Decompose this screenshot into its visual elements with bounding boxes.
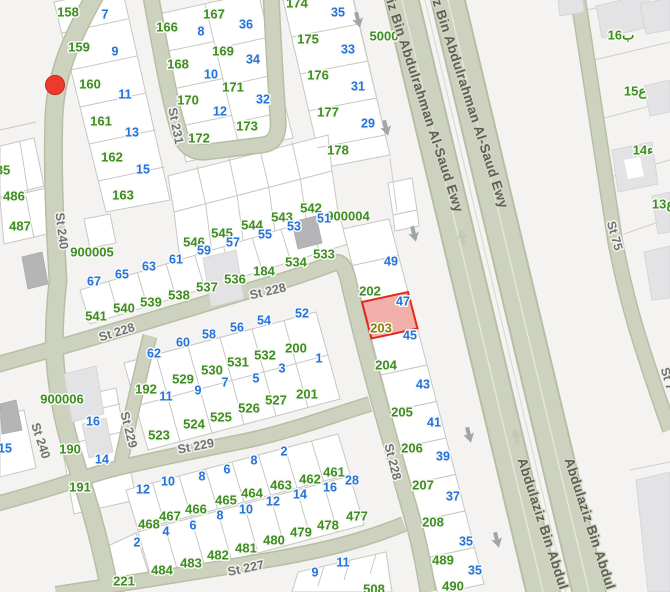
parcel-number-label: 530 [201, 362, 223, 377]
parcel-number-label: 531 [227, 354, 249, 369]
parcel-number-label: 200 [285, 340, 307, 355]
parcel-number-label: 524 [183, 416, 205, 431]
parcel-number-label: 178 [327, 142, 349, 157]
parcel-number-label: 184 [253, 263, 275, 278]
parcel-number-label: 525 [210, 409, 232, 424]
house-number-label: 11 [118, 87, 131, 101]
parcel-number-label: 486 [3, 188, 25, 203]
parcel-number-label: 532 [254, 347, 276, 362]
parcel-number-label: 541 [85, 308, 107, 323]
house-number-label: 11 [336, 555, 349, 569]
house-number-label: 61 [169, 252, 183, 266]
house-number-label: 51 [317, 211, 331, 225]
parcel-number-label: 526 [238, 400, 260, 415]
house-number-label: 8 [199, 469, 206, 483]
parcel-number-label: 172 [188, 130, 210, 145]
parcel-number-label: 480 [263, 532, 285, 547]
house-number-label: 59 [197, 243, 211, 257]
house-number-label: 14 [293, 487, 307, 501]
house-number-label: 35 [468, 563, 482, 577]
house-number-label: 6 [224, 462, 231, 476]
parcel-number-label: 508 [363, 581, 385, 592]
house-number-label: 4 [163, 524, 170, 538]
parcel-number-label: ع13 [652, 196, 670, 212]
parcel-number-label: 900004 [326, 208, 370, 223]
parcel-number-label: 170 [177, 92, 199, 107]
parcel-number-label: 479 [290, 524, 312, 539]
parcel-number-label: 465 [215, 492, 237, 507]
parcel-number-label: 173 [236, 118, 258, 133]
parcel-number-label: 35 [0, 162, 10, 177]
parcel-number-label: 206 [401, 440, 423, 455]
parcel-number-label: 158 [57, 4, 79, 19]
parcel-number-label: 163 [112, 187, 134, 202]
selected-parcel-label: 203 [370, 320, 392, 335]
parcel-number-label: 478 [317, 517, 339, 532]
parcel-number-label: 539 [140, 294, 162, 309]
parcel-number-label: 483 [180, 555, 202, 570]
parcel-number-label: 171 [222, 79, 244, 94]
house-number-label: 31 [351, 79, 365, 93]
parcel-number-label: ء14 [633, 142, 654, 157]
house-number-label: 3 [279, 361, 286, 375]
house-number-label: 10 [204, 67, 218, 81]
house-number-label: 53 [287, 219, 301, 233]
parcel-number-label: 159 [68, 39, 90, 54]
parcel-number-label: 490 [442, 578, 464, 592]
house-number-label: 2 [134, 535, 141, 549]
house-number-label: 36 [239, 17, 253, 31]
house-number-label: 9 [312, 565, 319, 579]
parcel-number-label: 523 [148, 427, 170, 442]
parcel-number-label: 533 [313, 246, 335, 261]
house-number-label: 63 [142, 259, 156, 273]
house-number-label: 11 [159, 389, 172, 403]
parcel-number-label: 489 [432, 552, 454, 567]
house-number-label: 32 [256, 92, 270, 106]
parcel-number-label: 177 [317, 104, 339, 119]
parcel-number-label: 462 [299, 471, 321, 486]
parcel-number-label: 463 [270, 477, 292, 492]
house-number-label: 16 [86, 414, 100, 428]
house-number-label: 12 [266, 494, 280, 508]
parcel-number-label: 221 [113, 573, 135, 588]
parcel-number-label: 536 [224, 271, 246, 286]
house-number-label: 7 [102, 7, 109, 21]
house-number-label: 5 [253, 371, 260, 385]
map-svg[interactable]: 1587159916011161131621516316681673616810… [0, 0, 670, 592]
house-number-label: 37 [446, 489, 460, 503]
house-number-label: 7 [222, 375, 229, 389]
house-number-label: 45 [403, 328, 417, 342]
house-number-label: 55 [258, 227, 272, 241]
house-number-label: 56 [230, 320, 244, 334]
house-number-label: 9 [195, 383, 202, 397]
house-number-label: 8 [217, 508, 224, 522]
parcel-number-label: ع15 [624, 83, 646, 99]
parcel-number-label: 464 [241, 485, 263, 500]
parcel-number-label: 161 [90, 113, 112, 128]
parcel-number-label: 160 [79, 76, 101, 91]
house-number-label: 12 [136, 482, 150, 496]
parcel-number-label: 482 [207, 547, 229, 562]
parcel-number-label: 204 [375, 357, 397, 372]
house-number-label: 29 [361, 116, 375, 130]
parcel-number-label: 176 [307, 67, 329, 82]
house-number-label: 2 [281, 444, 288, 458]
parcel-number-label: 162 [101, 149, 123, 164]
house-number-label: 15 [0, 441, 12, 455]
house-number-label: 60 [176, 335, 190, 349]
parcel-number-label: 527 [265, 392, 287, 407]
house-number-label: 52 [295, 306, 309, 320]
location-marker[interactable] [46, 76, 65, 95]
parcel-number-label: 205 [391, 404, 413, 419]
house-number-label: 58 [202, 327, 216, 341]
house-number-label: 57 [226, 235, 240, 249]
house-number-label: 34 [246, 52, 260, 66]
house-number-label: 35 [459, 534, 473, 548]
parcel-number-label: 537 [196, 279, 218, 294]
map-viewport[interactable]: 1587159916011161131621516316681673616810… [0, 0, 670, 592]
house-number-label: 13 [125, 125, 139, 139]
parcel-number-label: 167 [203, 6, 225, 21]
house-number-label: 8 [251, 453, 258, 467]
house-number-label: 33 [341, 42, 355, 56]
parcel-number-label: 166 [156, 19, 178, 34]
parcel-number-label: 534 [285, 254, 307, 269]
parcel-number-label: 477 [346, 508, 368, 523]
parcel-number-label: 208 [422, 514, 444, 529]
house-number-label: 15 [136, 162, 150, 176]
house-number-label: 41 [427, 415, 441, 429]
parcel-number-label: 529 [172, 371, 194, 386]
parcel-number-label: 484 [151, 562, 173, 577]
parcel-number-label: 175 [297, 31, 319, 46]
parcel-number-label: 467 [159, 508, 181, 523]
house-number-label: 1 [316, 351, 323, 365]
house-number-label: 28 [345, 473, 359, 487]
parcel-number-label: 540 [113, 300, 135, 315]
parcel-number-label: 538 [168, 287, 190, 302]
house-number-label: 8 [198, 24, 205, 38]
parcel-number-label: 900006 [40, 391, 83, 406]
house-number-label: 49 [384, 254, 398, 268]
house-number-label: 47 [396, 294, 410, 308]
house-number-label: 10 [161, 474, 175, 488]
house-number-label: 65 [115, 267, 129, 281]
parcel-number-label: 487 [9, 218, 31, 233]
parcel-number-label: 207 [412, 477, 434, 492]
parcel-number-label: 468 [138, 516, 160, 531]
parcel-number-label: 168 [167, 56, 189, 71]
parcel-number-label: 169 [212, 43, 234, 58]
parcel-number-label: 461 [323, 464, 345, 479]
house-number-label: 10 [239, 502, 253, 516]
house-number-label: 62 [147, 346, 161, 360]
house-number-label: 9 [112, 44, 119, 58]
house-number-label: 35 [331, 5, 345, 19]
house-number-label: 6 [190, 518, 197, 532]
parcel-number-label: 174 [286, 0, 308, 10]
parcel-number-label: 900005 [70, 244, 113, 259]
parcel-number-label: 201 [296, 386, 318, 401]
house-number-label: 43 [416, 377, 430, 391]
house-number-label: 67 [87, 274, 101, 288]
parcel-number-label: 202 [359, 283, 381, 298]
parcel-number-label: 192 [135, 381, 157, 396]
parcel-number-label: 481 [235, 540, 257, 555]
parcel-number-label: 190 [59, 441, 81, 456]
parcel-number-label: 466 [185, 501, 207, 516]
parcel-number-label: 191 [69, 479, 91, 494]
parcel-number-label: ب16 [608, 27, 635, 42]
house-number-label: 12 [213, 104, 227, 118]
house-number-label: 39 [436, 449, 450, 463]
house-number-label: 16 [323, 480, 337, 494]
house-number-label: 14 [95, 452, 109, 466]
house-number-label: 54 [257, 313, 271, 327]
